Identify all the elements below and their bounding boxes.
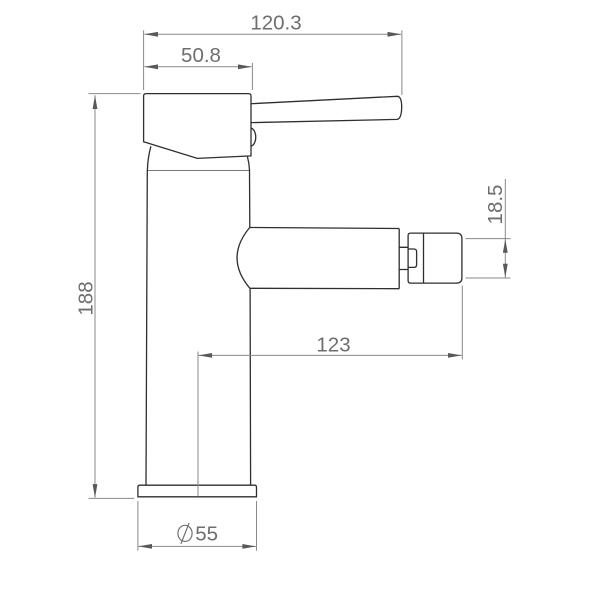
svg-text:50.8: 50.8 <box>181 44 221 67</box>
svg-text:120.3: 120.3 <box>250 12 301 35</box>
svg-text:123: 123 <box>316 334 350 357</box>
svg-text:18.5: 18.5 <box>484 185 507 225</box>
svg-text:188: 188 <box>75 281 98 315</box>
svg-text:55: 55 <box>195 523 218 546</box>
